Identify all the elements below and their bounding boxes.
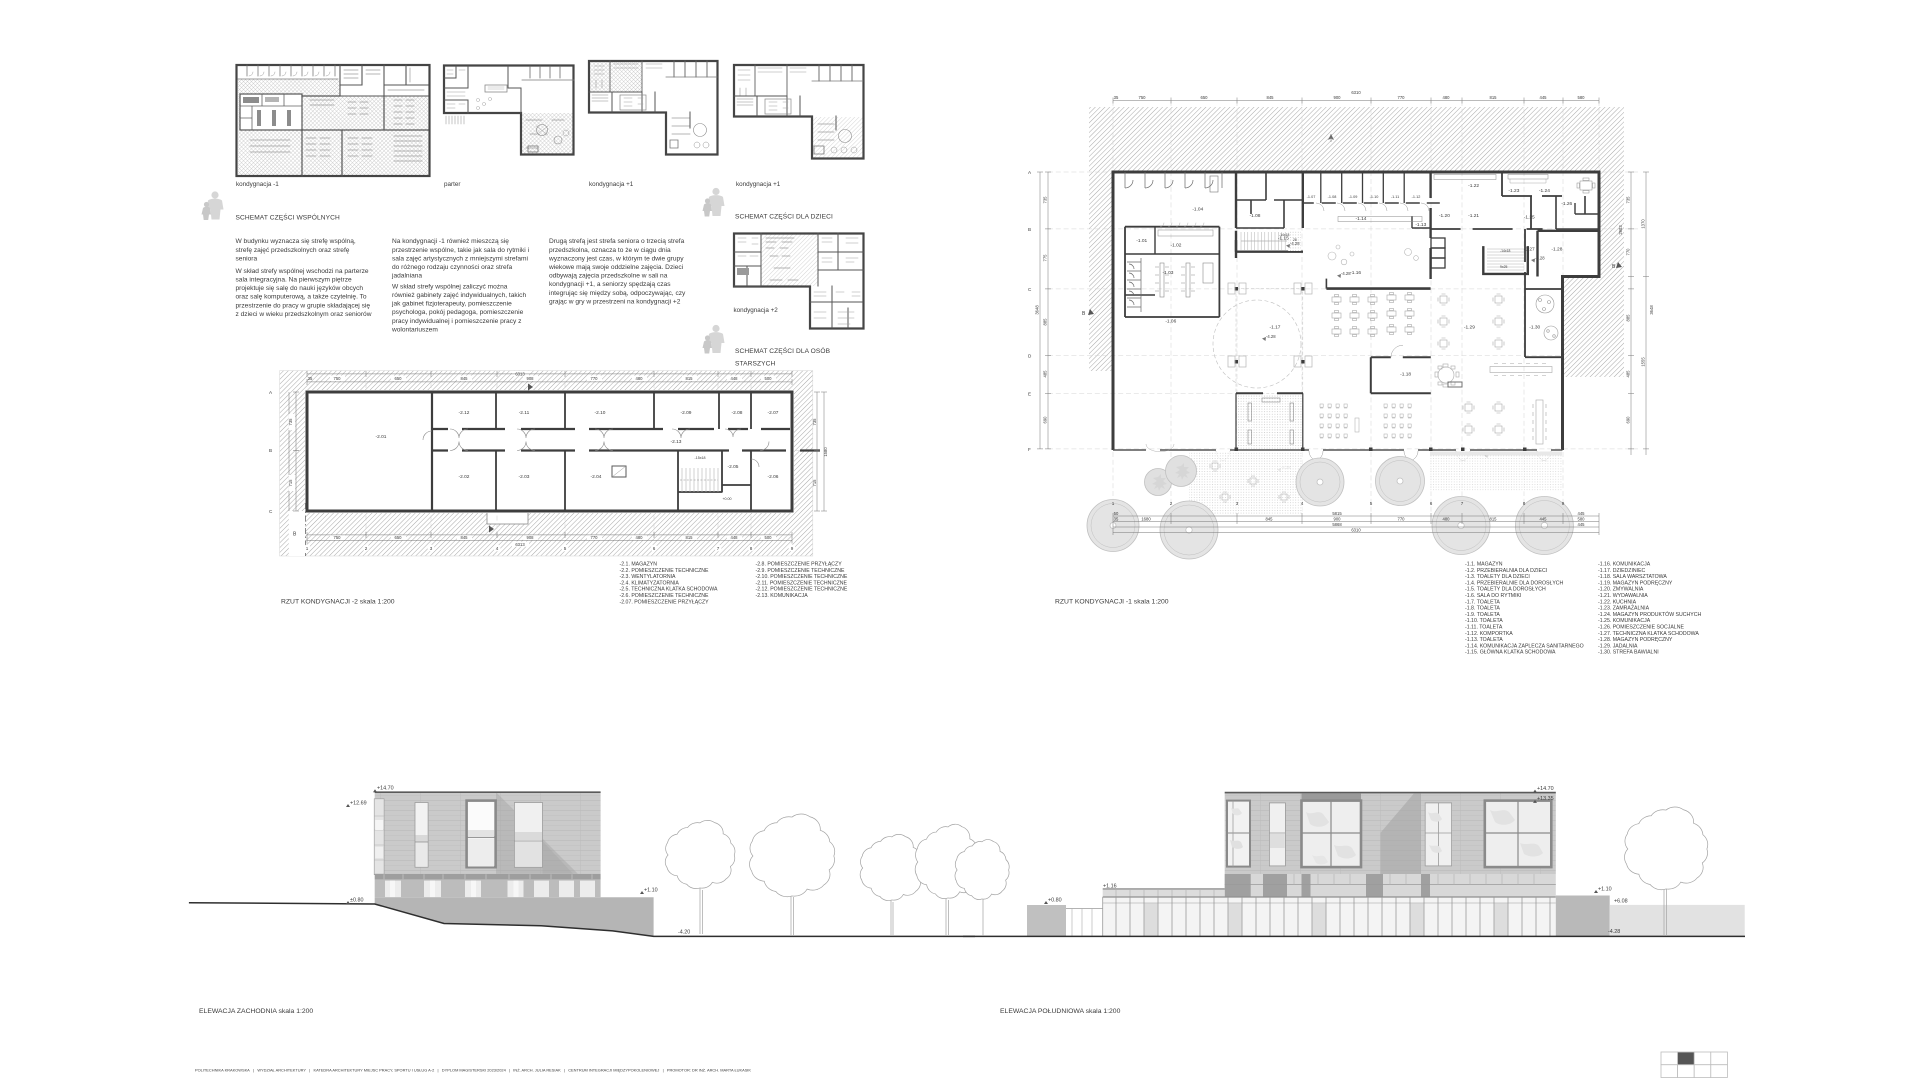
svg-text:-2.3. WENTYLATORNIA: -2.3. WENTYLATORNIA [620,574,677,580]
svg-text:6: 6 [1430,501,1433,506]
svg-text:-1.13: -1.13 [1415,222,1426,228]
svg-text:-14x18: -14x18 [1500,249,1510,253]
svg-text:-1.30. STREFA BAWIALNI: -1.30. STREFA BAWIALNI [1598,650,1659,656]
svg-text:-15x18: -15x18 [695,456,706,460]
svg-text:B: B [1028,227,1031,232]
svg-text:448: 448 [731,535,739,540]
svg-text:-2.4. KLIMATYZATORNIA: -2.4. KLIMATYZATORNIA [620,580,680,586]
svg-text:-1.23: -1.23 [1508,188,1519,194]
svg-text:-1.8. TOALETA: -1.8. TOALETA [1465,606,1500,612]
svg-text:-1.02: -1.02 [1171,242,1182,248]
svg-text:-2.04: -2.04 [591,474,602,480]
svg-text:kondygnacja -1: kondygnacja -1 [236,181,279,188]
svg-text:5868: 5868 [1332,522,1342,527]
svg-text:2: 2 [1170,501,1173,506]
svg-text:28: 28 [1293,238,1297,242]
svg-text:-1.16: -1.16 [1350,270,1361,276]
svg-text:-2.1. MAGAZYN: -2.1. MAGAZYN [620,562,658,568]
svg-text:wolontariuszem: wolontariuszem [391,326,438,333]
svg-text:-2.11. POMIESZCZENIE TECHNICZN: -2.11. POMIESZCZENIE TECHNICZNE [756,580,848,586]
svg-text:+1.10: +1.10 [644,888,658,894]
svg-text:770: 770 [1398,95,1406,100]
svg-text:-2.11: -2.11 [519,410,530,416]
svg-text:580: 580 [1578,95,1586,100]
svg-text:jak gabinet fizjoterapeuty, po: jak gabinet fizjoterapeuty, pomieszczeni… [391,301,512,308]
svg-text:908: 908 [527,376,535,381]
svg-text:650: 650 [1201,95,1209,100]
svg-text:50: 50 [1114,511,1119,516]
svg-text:projektuje się salę do nauki j: projektuje się salę do nauki języków obc… [236,285,364,292]
svg-text:W budynku wyznacza się strefę: W budynku wyznacza się strefę wspólną, [236,238,356,245]
svg-text:650: 650 [395,376,403,381]
svg-text:±0.80: ±0.80 [350,898,363,904]
svg-text:oraz salę komputerową, a także: oraz salę komputerową, a także czytelnię… [236,294,367,301]
svg-text:SCHEMAT CZĘŚCI DLA OSÓB: SCHEMAT CZĘŚCI DLA OSÓB [735,346,831,355]
svg-text:-1.01: -1.01 [1136,238,1147,244]
svg-text:8: 8 [750,546,753,551]
svg-text:750: 750 [1139,95,1147,100]
svg-text:480: 480 [1443,95,1451,100]
svg-text:-1.08: -1.08 [1250,213,1261,219]
svg-text:-1.22. KUCHNIA: -1.22. KUCHNIA [1598,599,1637,605]
svg-text:ELEWACJA POŁUDNIOWA skala 1: ELEWACJA POŁUDNIOWA skala 1:200 [1000,1008,1121,1015]
svg-text:5: 5 [1370,501,1373,506]
svg-text:1680: 1680 [1141,517,1151,522]
svg-text:-1.16. KOMUNIKACJA: -1.16. KOMUNIKACJA [1598,562,1651,568]
svg-text:845: 845 [1266,517,1274,522]
svg-text:-2.2. POMIESZCZENIE TECHNICZNE: -2.2. POMIESZCZENIE TECHNICZNE [620,568,710,574]
svg-text:9: 9 [791,546,794,551]
svg-text:-1.21. WYDAWALNIA: -1.21. WYDAWALNIA [1598,593,1648,599]
svg-text:-2.9. POMIESZCZENIE TECHNICZNE: -2.9. POMIESZCZENIE TECHNICZNE [756,568,846,574]
svg-text:5: 5 [564,546,567,551]
svg-text:3648: 3648 [1035,305,1040,315]
svg-text:-4.28: -4.28 [1341,271,1351,276]
svg-text:+1.10: +1.10 [1598,887,1612,893]
svg-text:+12.69: +12.69 [350,801,367,807]
svg-text:-2.07. POMIESZCZENIE PRZYŁĄCZY: -2.07. POMIESZCZENIE PRZYŁĄCZY [620,599,710,605]
svg-text:sala zajęć artystycznych z mni: sala zajęć artystycznych z mniejszymi st… [392,255,528,262]
svg-text:kondygnacji +1, a seniorzy spę: kondygnacji +1, a seniorzy spędzają czas [549,281,671,288]
svg-text:-4.28: -4.28 [1266,334,1276,339]
svg-text:STARSZYCH: STARSZYCH [735,361,775,368]
svg-text:900: 900 [1334,517,1342,522]
svg-text:kondygnacja +1: kondygnacja +1 [589,181,634,188]
svg-text:-1.3. TOALETY DLA DZIECI: -1.3. TOALETY DLA DZIECI [1465,574,1530,580]
svg-text:do różnego rodzaju czynności o: do różnego rodzaju czynności oraz strefa [392,264,513,271]
svg-text:715: 715 [288,479,293,487]
svg-text:-14x18: -14x18 [1279,233,1289,237]
svg-text:-1.12: -1.12 [1412,195,1421,199]
svg-text:przestrzenie wspólne, takie ja: przestrzenie wspólne, takie jak sala do … [392,247,530,254]
svg-text:-1.25. KOMUNIKACJA: -1.25. KOMUNIKACJA [1598,618,1651,624]
svg-text:-2.06: -2.06 [768,474,779,480]
svg-text:-1.04: -1.04 [1192,207,1203,213]
svg-text:580: 580 [1578,517,1586,522]
svg-text:35: 35 [1114,517,1119,522]
svg-text:750: 750 [334,535,342,540]
svg-text:735: 735 [1626,196,1631,204]
svg-text:690: 690 [1043,416,1048,424]
svg-text:również gabinety zajęć indywid: również gabinety zajęć indywidualnych, t… [392,292,526,299]
svg-text:445: 445 [1540,95,1548,100]
svg-text:-2.6. POMIESZCZENIE TECHNICZNE: -2.6. POMIESZCZENIE TECHNICZNE [620,593,710,599]
svg-text:-1.13. TOALETA: -1.13. TOALETA [1465,637,1503,643]
svg-text:-1.15. GŁÓWNA KLATKA SCHODOWA: -1.15. GŁÓWNA KLATKA SCHODOWA [1465,649,1556,656]
svg-text:845: 845 [1267,95,1275,100]
svg-text:-1.07: -1.07 [1307,195,1316,199]
svg-text:grając w gry w przestrzeni na: grając w gry w przestrzeni na kondygnacj… [549,298,681,305]
svg-text:-1.09: -1.09 [1349,195,1358,199]
svg-text:35: 35 [1114,95,1119,100]
svg-text:sala integracyjna. Na pierwszy: sala integracyjna. Na pierwszym piętrze [236,277,353,284]
svg-text:500: 500 [765,376,773,381]
svg-text:-1.27: -1.27 [1524,247,1535,253]
svg-text:W skład strefy wspólnej zalicz: W skład strefy wspólnej zaliczyć można [392,283,508,290]
svg-text:-1.1. MAGAZYN: -1.1. MAGAZYN [1465,562,1503,568]
svg-text:-1.17. DZIEDZINIEC: -1.17. DZIEDZINIEC [1598,568,1646,574]
svg-text:-4.28: -4.28 [1608,929,1620,935]
svg-text:735: 735 [1043,196,1048,204]
svg-text:815: 815 [1490,517,1498,522]
svg-text:-1.22: -1.22 [1468,183,1479,189]
svg-text:odbywają zajęcia przedszkolne: odbywają zajęcia przedszkolne w sali na [549,273,668,280]
svg-text:4: 4 [496,546,499,551]
svg-text:445: 445 [1578,511,1586,516]
svg-text:485: 485 [1043,370,1048,378]
svg-text:480: 480 [636,376,644,381]
svg-text:parter: parter [444,181,460,188]
svg-text:9x25: 9x25 [1500,265,1507,269]
svg-text:-1.28: -1.28 [1551,247,1562,253]
svg-text:1555: 1555 [1641,357,1646,367]
svg-text:F: F [1028,447,1031,452]
svg-text:jadalniana: jadalniana [391,273,422,280]
svg-text:735: 735 [288,418,293,426]
svg-text:7: 7 [717,546,720,551]
svg-text:-4.28: -4.28 [1535,256,1545,261]
svg-text:3648: 3648 [1649,305,1654,315]
svg-text:-1.25: -1.25 [1524,215,1535,221]
svg-text:6310: 6310 [1351,90,1361,95]
svg-text:445: 445 [1540,517,1548,522]
svg-text:seniora: seniora [236,255,258,262]
svg-text:POLITECHNIKA KRAKOWSKA | W: POLITECHNIKA KRAKOWSKA | WYDZIAŁ ARCHITE… [195,1068,751,1073]
svg-text:5815: 5815 [1332,511,1342,516]
svg-text:690: 690 [1626,416,1631,424]
svg-text:-1.19. MAGAZYN PODRĘCZNY: -1.19. MAGAZYN PODRĘCZNY [1598,580,1673,586]
svg-text:4: 4 [1301,501,1304,506]
svg-text:+13.35: +13.35 [1537,796,1554,802]
svg-text:-1.10. TOALETA: -1.10. TOALETA [1465,618,1503,624]
svg-text:-2.10. POMIESZCZENIE TECHNICZN: -2.10. POMIESZCZENIE TECHNICZNE [756,574,848,580]
svg-text:-2.09: -2.09 [681,410,692,416]
svg-text:+0.00: +0.00 [722,497,731,501]
svg-text:908: 908 [527,535,535,540]
svg-text:3: 3 [1236,501,1239,506]
svg-text:W skład strefy wspólnej wschod: W skład strefy wspólnej wschodzi na part… [236,268,369,275]
svg-text:SCHEMAT CZĘŚCI WSPÓLNYCH: SCHEMAT CZĘŚCI WSPÓLNYCH [236,213,341,222]
svg-text:psychologa, pokój pedagoga, po: psychologa, pokój pedagoga, pomieszczeni… [392,309,524,316]
svg-text:3: 3 [430,546,433,551]
svg-text:2: 2 [365,546,368,551]
svg-text:-2.12. POMIESZCZENIE TECHNICZN: -2.12. POMIESZCZENIE TECHNICZNE [756,587,848,593]
svg-text:1370: 1370 [1641,219,1646,229]
svg-text:-1.5. TOALETY DLA DOROSŁYCH: -1.5. TOALETY DLA DOROSŁYCH [1465,587,1546,593]
svg-text:+14.70: +14.70 [1537,786,1554,792]
svg-text:445: 445 [1578,522,1586,527]
svg-text:-1.2. PRZEBIERALNIA DLA DZIECI: -1.2. PRZEBIERALNIA DLA DZIECI [1465,568,1547,574]
svg-text:-2.08: -2.08 [732,410,743,416]
svg-text:E: E [1028,391,1031,396]
svg-text:+0.80: +0.80 [1048,898,1062,904]
svg-text:-1.27. TECHNICZNA KLATKA SCHOD: -1.27. TECHNICZNA KLATKA SCHODOWA [1598,631,1699,637]
svg-text:-1.11. TOALETA: -1.11. TOALETA [1465,625,1503,631]
svg-text:wiekowe mają swoje oddzielne z: wiekowe mają swoje oddzielne zajęcia. Dz… [548,264,684,271]
svg-text:-1.9. TOALETA: -1.9. TOALETA [1465,612,1500,618]
svg-text:-2.5. TECHNICZNA KLATKA SCHODO: -2.5. TECHNICZNA KLATKA SCHODOWA [620,587,718,593]
svg-text:-1.21: -1.21 [1468,213,1479,219]
svg-text:pracy indywidualnej i pomieszc: pracy indywidualnej i pomieszczenie prac… [392,318,521,325]
svg-text:650: 650 [395,535,403,540]
svg-text:Na kondygnacji -1 również mies: Na kondygnacji -1 również mieszczą się [392,238,509,245]
svg-text:RZUT KONDYGNACJI -1 skala 1: RZUT KONDYGNACJI -1 skala 1:200 [1055,598,1169,605]
svg-text:6: 6 [653,546,656,551]
svg-text:-1.06: -1.06 [1165,319,1176,325]
svg-text:-2.03: -2.03 [519,474,530,480]
svg-text:6310: 6310 [1351,528,1361,533]
svg-text:-2.10: -2.10 [595,410,606,416]
svg-text:kondygnacja +1: kondygnacja +1 [736,181,781,188]
svg-text:-2.01: -2.01 [376,434,387,440]
svg-text:770: 770 [1398,517,1406,522]
svg-text:-2.13. KOMUNIKACJA: -2.13. KOMUNIKACJA [756,593,809,599]
svg-text:+6.08: +6.08 [1614,899,1628,905]
svg-text:2903: 2903 [1618,225,1623,235]
svg-text:500: 500 [765,535,773,540]
svg-text:kondygnacja +2: kondygnacja +2 [734,307,779,314]
svg-text:715: 715 [812,479,817,487]
svg-text:-1.26: -1.26 [1561,201,1572,207]
svg-text:-2.02: -2.02 [459,474,470,480]
svg-text:-2.05: -2.05 [728,464,739,470]
svg-text:wyznaczony jest czas, w którym: wyznaczony jest czas, w którym te dwie g… [548,255,684,262]
svg-text:Drugą strefą jest strefa senio: Drugą strefą jest strefa seniora o trzec… [549,238,685,245]
svg-text:-1.7. TOALETA: -1.7. TOALETA [1465,599,1500,605]
svg-text:448: 448 [731,376,739,381]
svg-text:770: 770 [591,535,599,540]
svg-text:z dzieci w wieku przedszkolnym: z dzieci w wieku przedszkolnym oraz seni… [236,311,372,318]
svg-text:1580: 1580 [823,447,828,457]
svg-text:przestrzenie do pracy w grupie: przestrzenie do pracy w grupie składając… [236,302,371,309]
svg-text:B: B [269,448,272,453]
svg-text:770: 770 [1626,248,1631,256]
svg-text:strefę zajęć przedszkolnych or: strefę zajęć przedszkolnych oraz strefę [236,247,350,254]
svg-text:-1.30: -1.30 [1529,324,1540,330]
svg-text:-1.17: -1.17 [1270,324,1281,330]
svg-text:775: 775 [1043,254,1048,262]
svg-text:-1.20. ZMYWALNIA: -1.20. ZMYWALNIA [1598,587,1644,593]
svg-text:9: 9 [1562,501,1565,506]
svg-text:integrując się między sobą, od: integrując się między sobą, odpoczywając… [549,290,686,297]
svg-text:845: 845 [461,376,469,381]
svg-text:-1.24: -1.24 [1539,188,1550,194]
svg-text:35: 35 [308,376,313,381]
svg-text:+14.70: +14.70 [377,786,394,792]
svg-text:770: 770 [591,376,599,381]
svg-text:-2.13: -2.13 [671,439,682,445]
svg-text:-1.18: -1.18 [1400,372,1411,378]
svg-text:1: 1 [1112,501,1115,506]
svg-text:-1.29. JADALNIA: -1.29. JADALNIA [1598,643,1638,649]
svg-text:480: 480 [636,535,644,540]
svg-text:-1.26. POMIESZCZENIE SOCJALNE: -1.26. POMIESZCZENIE SOCJALNE [1598,625,1684,631]
svg-text:-1.23. ZAMRAŻALNIA: -1.23. ZAMRAŻALNIA [1598,605,1650,612]
svg-text:-1.6. SALA DO RYTMIKI: -1.6. SALA DO RYTMIKI [1465,593,1521,599]
svg-text:-1.10: -1.10 [1370,195,1379,199]
svg-text:815: 815 [686,376,694,381]
svg-text:900: 900 [1334,95,1342,100]
svg-text:przedszkolna, oznacza to że w: przedszkolna, oznacza to że w ciągu dnia [549,247,671,254]
svg-text:-4.20: -4.20 [678,930,690,936]
svg-text:6313: 6313 [515,542,525,547]
svg-text:-1.03: -1.03 [1163,270,1174,276]
svg-text:-1.14: -1.14 [1356,216,1367,222]
svg-text:1: 1 [306,546,309,551]
svg-text:8: 8 [1523,501,1526,506]
svg-text:-1.18. SALA WARSZTATOWA: -1.18. SALA WARSZTATOWA [1598,574,1667,580]
svg-text:815: 815 [1490,95,1498,100]
svg-text:-1.24. MAGAZYN PRODUKTÓW SUCHY: -1.24. MAGAZYN PRODUKTÓW SUCHYCH [1598,611,1701,618]
svg-text:815: 815 [686,535,694,540]
svg-text:+1.16: +1.16 [1103,883,1117,889]
svg-text:750: 750 [334,376,342,381]
svg-text:480: 480 [1443,517,1451,522]
svg-text:-1.29: -1.29 [1464,324,1475,330]
svg-text:485: 485 [1626,370,1631,378]
svg-text:-1.20: -1.20 [1439,213,1450,219]
svg-text:885: 885 [1626,314,1631,322]
svg-text:-1.12. KOMPORTKA: -1.12. KOMPORTKA [1465,631,1513,637]
svg-text:ELEWACJA ZACHODNIA skala 1:: ELEWACJA ZACHODNIA skala 1:200 [199,1008,313,1015]
svg-text:-1.11: -1.11 [1391,195,1399,199]
svg-text:-1.14. KOMUNIKACJA ZAPLECZA SA: -1.14. KOMUNIKACJA ZAPLECZA SANITARNEGO [1465,643,1584,649]
svg-text:7: 7 [1461,501,1464,506]
svg-text:-2.8. POMIESZCZENIE PRZYŁĄCZY: -2.8. POMIESZCZENIE PRZYŁĄCZY [756,562,843,568]
svg-text:885: 885 [1043,318,1048,326]
svg-text:735: 735 [812,418,817,426]
svg-text:-1.08: -1.08 [1328,195,1337,199]
svg-text:-2.07: -2.07 [768,410,779,416]
svg-text:6313: 6313 [515,371,525,376]
svg-text:-2.12: -2.12 [459,410,470,416]
svg-text:845: 845 [461,535,469,540]
svg-text:-1.4. PRZEBIERALNIE DLA DOROSŁ: -1.4. PRZEBIERALNIE DLA DOROSŁYCH [1465,580,1564,586]
svg-text:RZUT KONDYGNACJI -2 skala 1: RZUT KONDYGNACJI -2 skala 1:200 [281,598,395,605]
svg-text:-1.28. MAGAZYN PODRĘCZNY: -1.28. MAGAZYN PODRĘCZNY [1598,637,1673,643]
svg-text:SCHEMAT CZĘŚCI DLA DZIECI: SCHEMAT CZĘŚCI DLA DZIECI [735,212,833,221]
